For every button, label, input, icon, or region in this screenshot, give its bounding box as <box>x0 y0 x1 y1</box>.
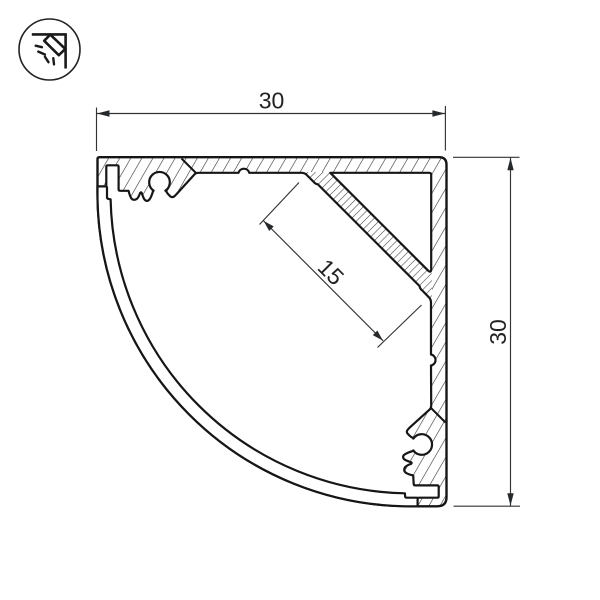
svg-text:30: 30 <box>259 88 285 114</box>
svg-text:30: 30 <box>485 319 511 345</box>
